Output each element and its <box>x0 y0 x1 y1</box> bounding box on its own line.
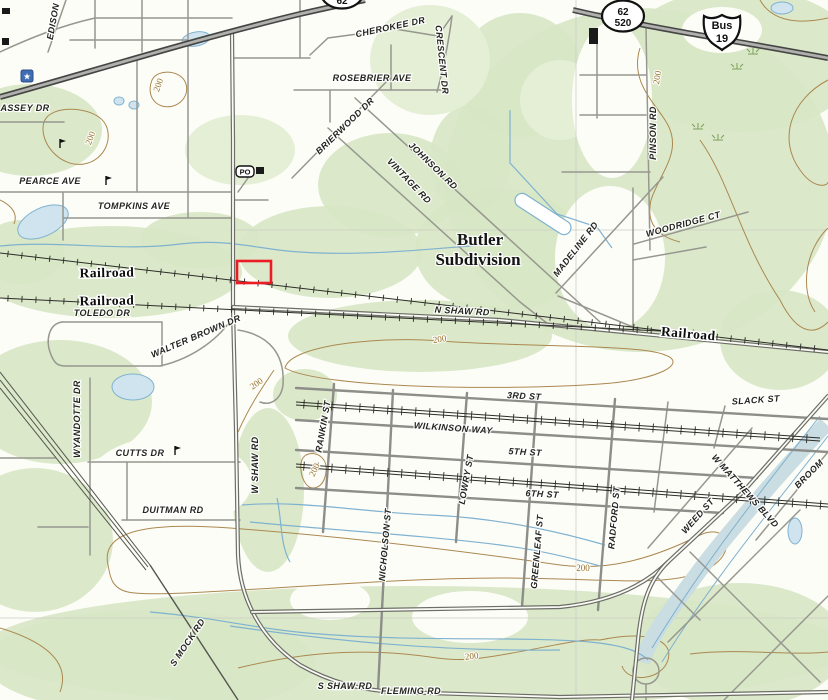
railroad-label-railroad: Railroad <box>79 293 134 309</box>
street-label-wilkinson-way: WILKINSON WAY <box>413 420 493 436</box>
street-label-duitman-rd: DUITMAN RD <box>143 505 204 515</box>
street-label-tompkins-ave: TOMPKINS AVE <box>98 201 171 211</box>
street-label-slack-st: SLACK ST <box>731 393 781 406</box>
contour-label-200: 200 <box>248 375 265 391</box>
svg-text:Bus: Bus <box>712 20 733 32</box>
building-1 <box>2 38 9 45</box>
post-office-label: PO <box>240 168 251 177</box>
street-label-3rd-st: 3RD ST <box>507 390 543 402</box>
topo-map: ★PO EDISONASSEY DRPEARCE AVETOMPKINS AVE… <box>0 0 828 700</box>
street-label-w-shaw-rd: W SHAW RD <box>250 436 260 493</box>
forest-areas <box>0 0 828 700</box>
street-label-greenleaf-st: GREENLEAF ST <box>529 513 546 589</box>
street-label-cutts-dr: CUTTS DR <box>116 448 165 458</box>
contour-label-200: 200 <box>464 650 479 661</box>
contour-label-200: 200 <box>432 333 447 345</box>
street-label-toledo-dr: TOLEDO DR <box>74 308 131 318</box>
street-label-fleming-rd: FLEMING RD <box>381 686 441 696</box>
street-label-s-shaw-rd: S SHAW RD <box>318 681 373 691</box>
railroad-label-railroad: Railroad <box>79 265 134 281</box>
street-label-6th-st: 6TH ST <box>525 488 560 500</box>
svg-text:★: ★ <box>23 73 31 83</box>
school-star-icon: ★ <box>21 70 33 83</box>
street-label-rosebrier-ave: ROSEBRIER AVE <box>333 73 412 83</box>
svg-text:520: 520 <box>615 18 632 29</box>
street-label-5th-st: 5TH ST <box>508 446 543 458</box>
contour-label-200: 200 <box>151 76 165 93</box>
contour-label-200: 200 <box>576 563 590 573</box>
svg-text:62: 62 <box>336 0 348 7</box>
svg-text:62: 62 <box>617 7 629 18</box>
building-3 <box>589 28 598 44</box>
street-label-nicholson-st: NICHOLSON ST <box>377 507 393 581</box>
svg-text:19: 19 <box>716 33 728 45</box>
street-label-weed-st: WEED ST <box>679 496 716 536</box>
street-label-assey-dr: ASSEY DR <box>0 103 50 113</box>
street-label-wyandotte-dr: WYANDOTTE DR <box>72 380 82 458</box>
street-label-pearce-ave: PEARCE AVE <box>19 176 81 186</box>
landmark-flag-icon <box>106 176 112 185</box>
street-label-pinson-rd: PINSON RD <box>648 106 658 160</box>
place-label-subdivision: Subdivision <box>435 250 521 269</box>
street-label-radford-st: RADFORD ST <box>606 485 622 550</box>
topo-map-canvas: ★PO EDISONASSEY DRPEARCE AVETOMPKINS AVE… <box>0 0 828 700</box>
post-office-symbol: PO <box>236 166 254 177</box>
route-shield-62-520: 62520 <box>602 1 644 32</box>
building-0 <box>2 8 10 14</box>
place-label-butler: Butler <box>457 230 504 249</box>
building-2 <box>256 167 264 174</box>
contour-label-200: 200 <box>307 461 322 478</box>
